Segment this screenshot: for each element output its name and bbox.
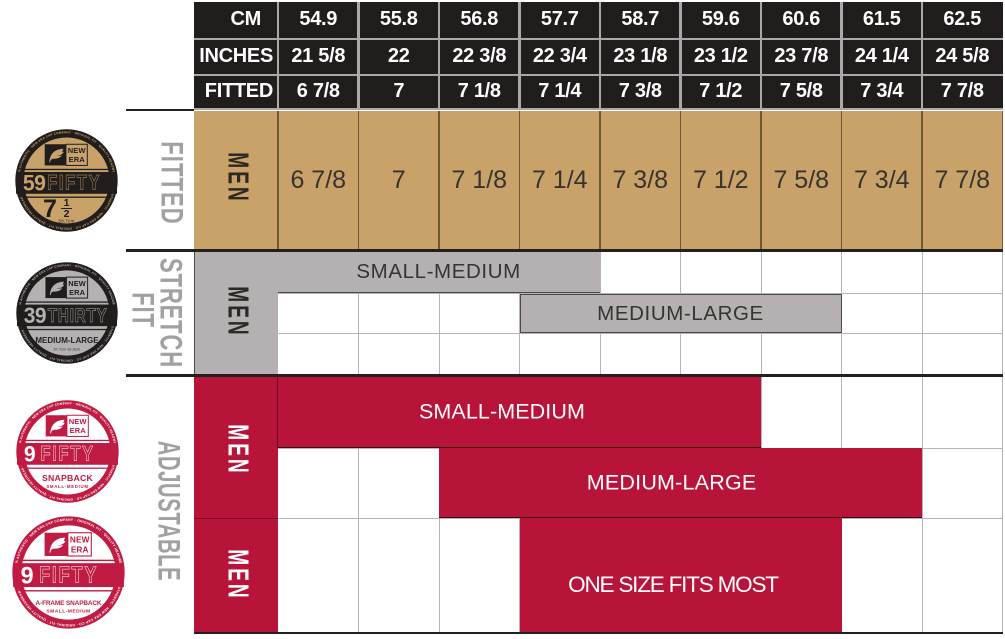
svg-text:ERA: ERA — [70, 545, 88, 554]
svg-text:9: 9 — [20, 562, 33, 590]
svg-text:SNAPBACK: SNAPBACK — [42, 473, 93, 483]
svg-text:9: 9 — [24, 441, 36, 467]
svg-text:A-FRAME SNAPBACK: A-FRAME SNAPBACK — [35, 600, 101, 607]
svg-text:NEW: NEW — [69, 536, 89, 545]
svg-text:FIFTY: FIFTY — [38, 563, 97, 588]
svg-text:ERA: ERA — [69, 288, 86, 297]
svg-text:SMALL-MEDIUM: SMALL-MEDIUM — [46, 484, 88, 489]
svg-text:ERA: ERA — [70, 426, 87, 435]
svg-text:FIFTY: FIFTY — [47, 171, 101, 194]
svg-text:FIFTY: FIFTY — [41, 442, 95, 465]
svg-text:MEDIUM-LARGE: MEDIUM-LARGE — [35, 336, 99, 345]
svg-text:NEW: NEW — [69, 417, 88, 426]
svg-text:SMALL-MEDIUM: SMALL-MEDIUM — [46, 609, 90, 615]
svg-text:NEW: NEW — [68, 146, 87, 155]
svg-text:59: 59 — [23, 170, 46, 196]
svg-text:THIRTY: THIRTY — [48, 304, 108, 326]
svg-text:57,7cm-61,5cm: 57,7cm-61,5cm — [54, 347, 81, 351]
svg-text:NEW: NEW — [68, 279, 87, 288]
svg-text:ERA: ERA — [69, 155, 86, 164]
svg-text:39: 39 — [24, 304, 47, 328]
